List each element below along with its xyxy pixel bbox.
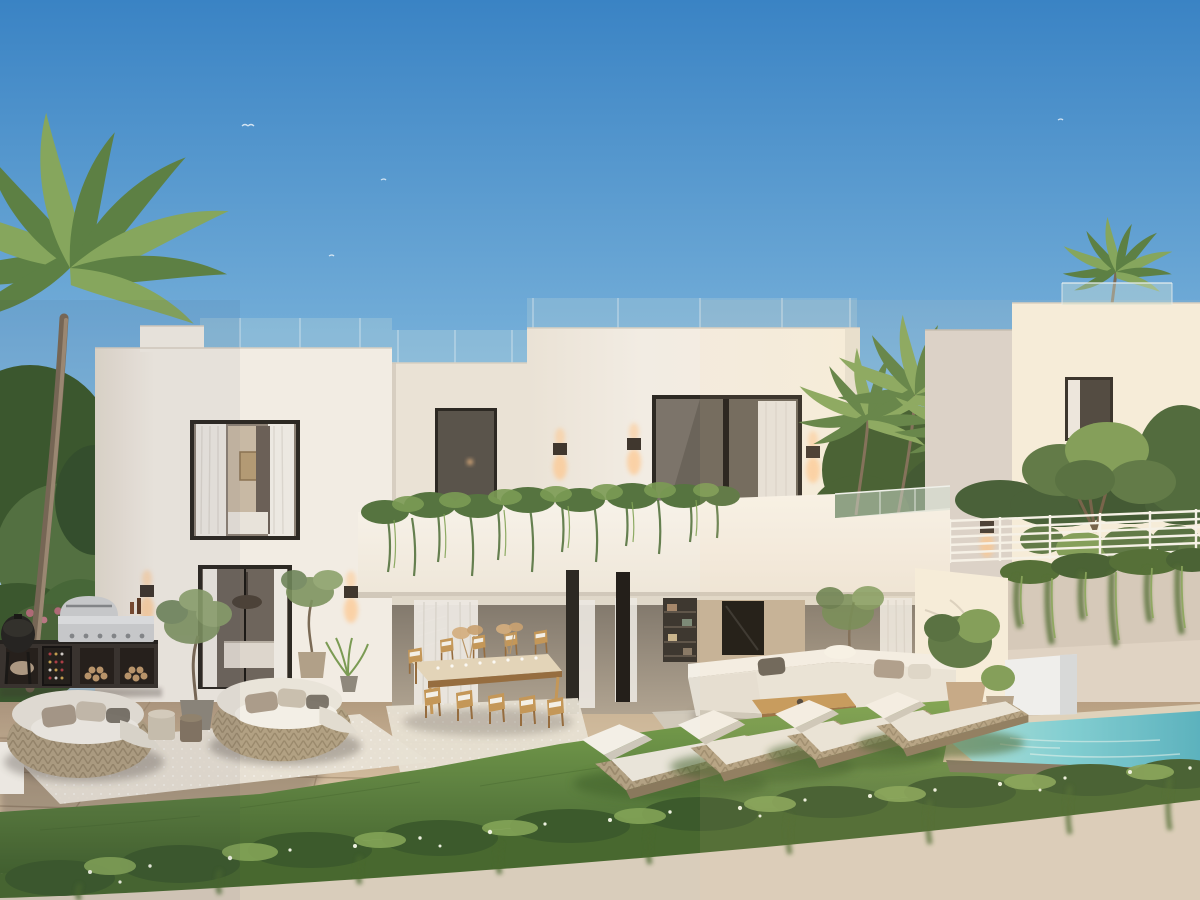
villa-render — [0, 0, 1200, 900]
wall-sconce — [553, 428, 567, 480]
cool-shade-overlay — [0, 300, 240, 900]
warm-light-overlay — [700, 300, 1200, 900]
wall-sconce — [344, 571, 358, 623]
door-mullion — [616, 572, 630, 702]
wall-sconce — [627, 423, 641, 475]
bookshelf — [663, 598, 697, 662]
